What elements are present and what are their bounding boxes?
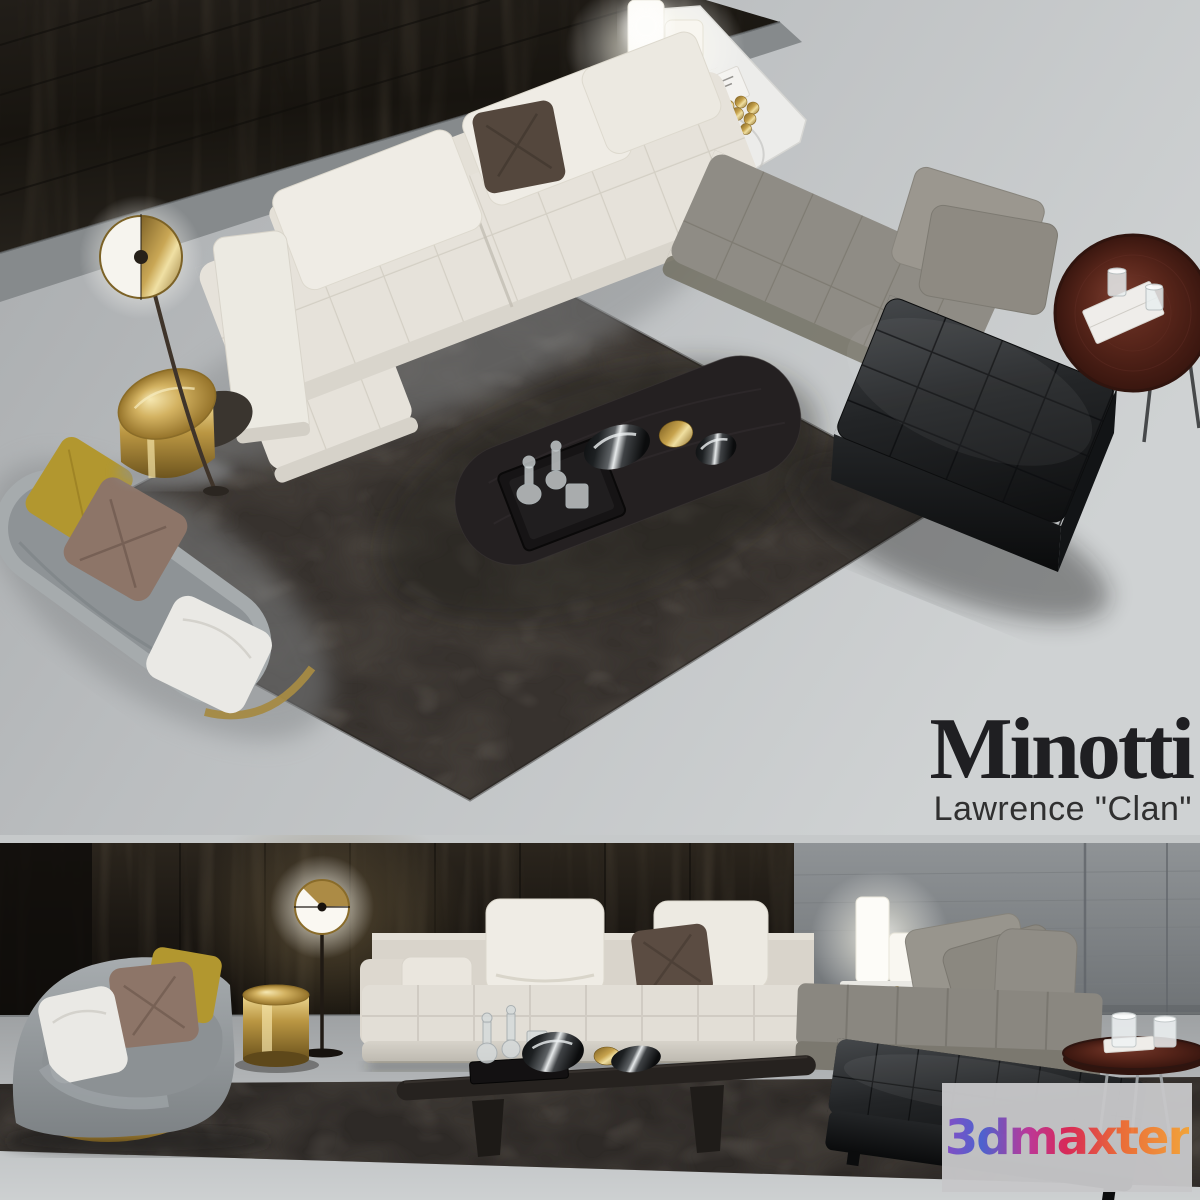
pillow-brown: [471, 99, 567, 195]
watermark-badge: 3dmaxter: [942, 1083, 1192, 1192]
render-canvas: Minotti Lawrence "Clan": [0, 0, 1200, 1200]
lamp-base: [203, 486, 229, 496]
brand-collection-text: Lawrence "Clan": [929, 792, 1192, 826]
brand-block: Minotti Lawrence "Clan": [929, 710, 1192, 826]
stool-gold-front: [235, 985, 319, 1073]
back-cushion-front-1: [486, 899, 604, 993]
brand-logo-text: Minotti: [929, 710, 1192, 789]
watermark-text: 3dmaxter: [945, 1110, 1189, 1166]
